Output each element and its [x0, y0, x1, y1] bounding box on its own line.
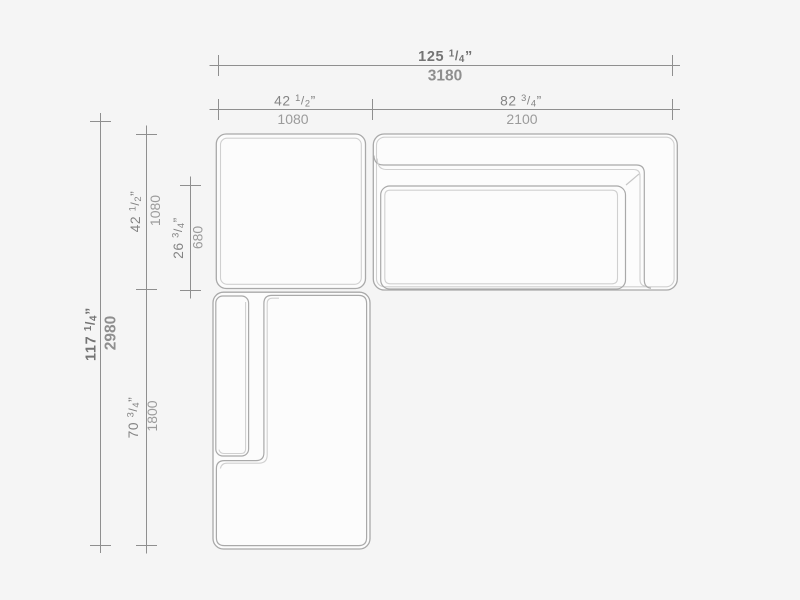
svg-text:3180: 3180	[428, 68, 462, 85]
svg-text:1080: 1080	[277, 111, 308, 127]
svg-text:125 1/4”: 125 1/4”	[418, 48, 473, 65]
svg-text:2100: 2100	[506, 111, 537, 127]
svg-text:2980: 2980	[103, 316, 120, 350]
svg-text:1080: 1080	[147, 195, 163, 226]
svg-text:1800: 1800	[144, 400, 160, 431]
svg-text:680: 680	[190, 226, 206, 250]
svg-text:117 1/4”: 117 1/4”	[83, 307, 100, 361]
